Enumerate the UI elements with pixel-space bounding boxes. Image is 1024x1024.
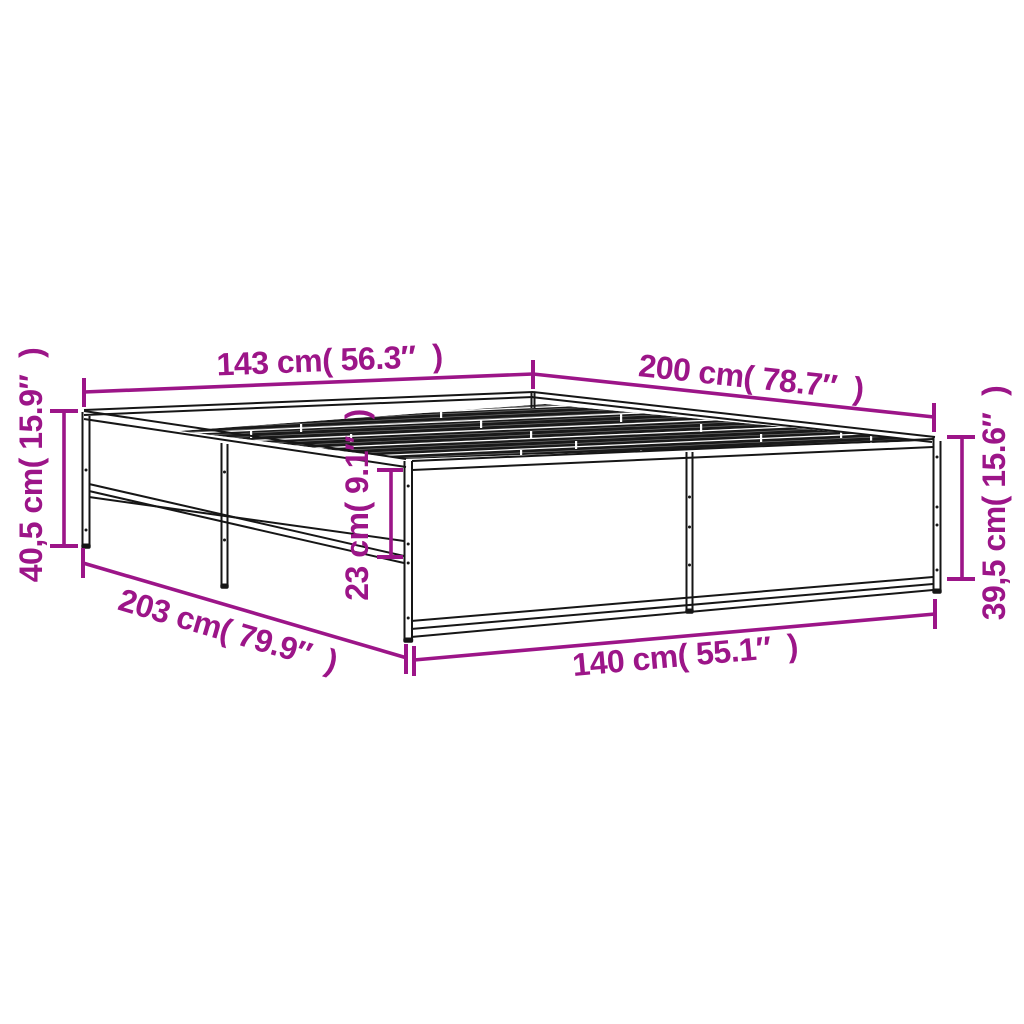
svg-text:39,5 cm( 15.6″ ): 39,5 cm( 15.6″ ) — [976, 386, 1012, 621]
svg-text:40,5 cm( 15.9″ ): 40,5 cm( 15.9″ ) — [13, 348, 49, 583]
svg-text:23 cm( 9.1″ ): 23 cm( 9.1″ ) — [339, 409, 375, 601]
